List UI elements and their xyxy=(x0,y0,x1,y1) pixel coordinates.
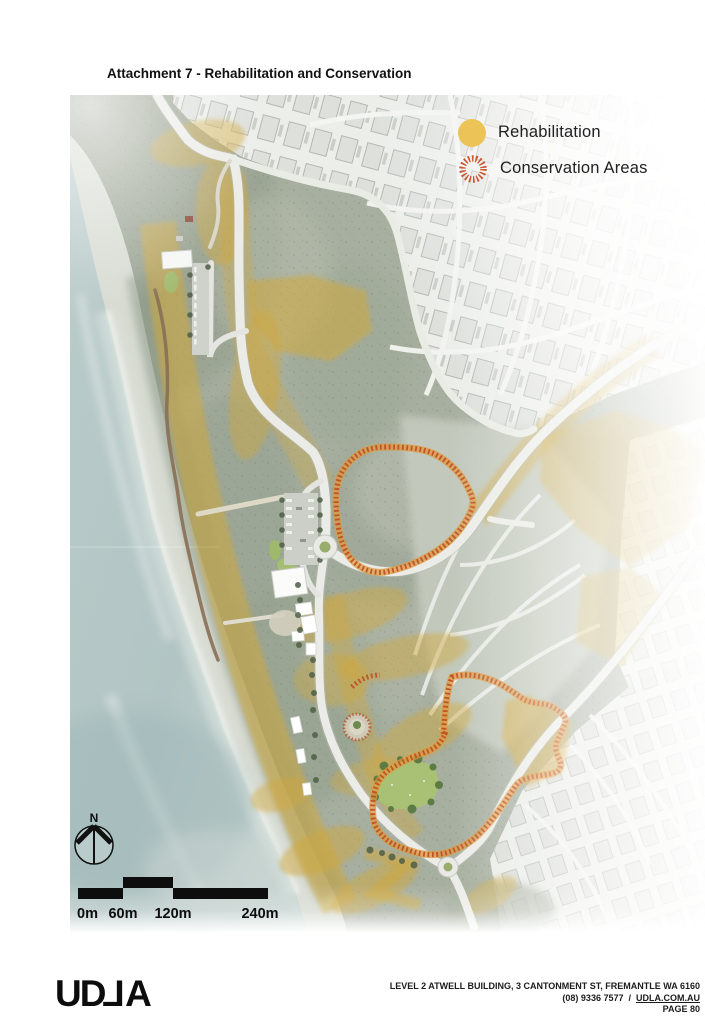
legend-label-rehabilitation: Rehabilitation xyxy=(498,123,601,142)
map-area: N 0m 60m 120m 240m Rehabilitation xyxy=(70,95,705,933)
legend-item-conservation: Conservation Areas xyxy=(458,153,648,184)
footer-page-number: PAGE 80 xyxy=(390,1004,700,1016)
scale-label-240: 240m xyxy=(241,906,278,922)
footer-text: LEVEL 2 ATWELL BUILDING, 3 CANTONMENT ST… xyxy=(390,981,700,1016)
udla-logo: UDLA xyxy=(55,973,150,1015)
conservation-swatch-icon xyxy=(458,154,488,184)
legend-label-conservation: Conservation Areas xyxy=(500,159,648,178)
logo-part: UD xyxy=(55,973,104,1014)
footer-contact-line: (08) 9336 7577/UDLA.COM.AU xyxy=(390,993,700,1005)
footer-address: LEVEL 2 ATWELL BUILDING, 3 CANTONMENT ST… xyxy=(390,981,700,993)
footer-phone: (08) 9336 7577 xyxy=(562,993,623,1003)
footer-separator: / xyxy=(628,993,631,1003)
scale-label-120: 120m xyxy=(154,906,191,922)
footer-website-link[interactable]: UDLA.COM.AU xyxy=(636,993,700,1003)
rehabilitation-swatch-icon xyxy=(458,119,486,147)
map-legend: Rehabilitation Conservation Areas xyxy=(458,117,648,184)
logo-part: A xyxy=(125,973,150,1014)
scale-label-0: 0m xyxy=(77,906,98,922)
map-illustration: N 0m 60m 120m 240m xyxy=(70,95,705,933)
page-root: Attachment 7 - Rehabilitation and Conser… xyxy=(0,0,705,1021)
logo-part-flipped-l: L xyxy=(104,973,125,1015)
scale-label-60: 60m xyxy=(108,906,137,922)
compass-label: N xyxy=(90,811,99,825)
page-title: Attachment 7 - Rehabilitation and Conser… xyxy=(107,66,412,81)
legend-item-rehabilitation: Rehabilitation xyxy=(458,117,648,148)
